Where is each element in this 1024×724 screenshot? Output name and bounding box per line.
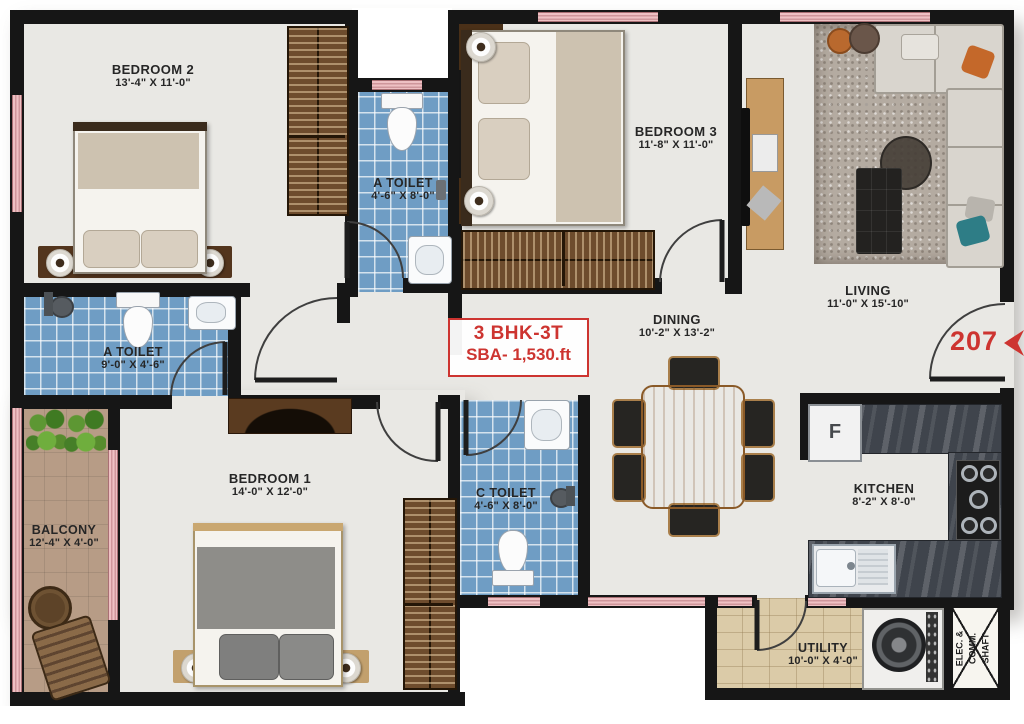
wall-shaft-right bbox=[998, 595, 1010, 700]
bedroom1-bed-blanket bbox=[197, 547, 335, 629]
stove-burner-3 bbox=[961, 517, 978, 534]
room-label-living: LIVING 11'-0" X 15'-10" bbox=[827, 283, 909, 310]
toilet-a-top-sink-basin bbox=[415, 245, 444, 275]
toilet-a-left-dims: 9'-0" X 4'-6" bbox=[101, 359, 165, 371]
pouf-brown bbox=[849, 23, 880, 54]
room-label-bedroom3: BEDROOM 3 11'-8" X 11'-0" bbox=[635, 124, 717, 151]
utility-name: UTILITY bbox=[788, 641, 858, 655]
room-label-kitchen: KITCHEN 8'-2" X 8'-0" bbox=[852, 481, 916, 508]
sofa-back-pillow bbox=[901, 34, 939, 60]
wall-utility-left bbox=[705, 595, 717, 700]
toilet-c-name: C TOILET bbox=[474, 486, 538, 500]
kitchen-dims: 8'-2" X 8'-0" bbox=[852, 496, 916, 508]
bedroom1-wardrobe bbox=[403, 498, 457, 690]
bedroom2-name: BEDROOM 2 bbox=[112, 62, 194, 77]
wall-living-left bbox=[728, 10, 742, 290]
wall-top-left bbox=[10, 10, 358, 24]
bedroom3-pillow-bottom bbox=[478, 118, 530, 180]
bedroom1-pillow-right bbox=[279, 634, 334, 680]
bedroom2-bed-footboard bbox=[73, 122, 207, 131]
kitchen-name: KITCHEN bbox=[852, 481, 916, 496]
bedroom2-pillow-right bbox=[141, 230, 198, 268]
washing-machine-panel bbox=[926, 612, 938, 682]
toilet-a-top-shower bbox=[436, 180, 446, 200]
bedroom1-name: BEDROOM 1 bbox=[229, 471, 311, 486]
utility-dims: 10'-0" X 4'-0" bbox=[788, 655, 858, 667]
bedroom3-bed-blanket bbox=[556, 32, 621, 222]
room-label-balcony: BALCONY 12'-4" X 4'-0" bbox=[29, 523, 99, 549]
fridge: F bbox=[808, 404, 862, 462]
living-name: LIVING bbox=[827, 283, 909, 298]
shaft-label: ELEC. & COMM. SHAFT bbox=[954, 609, 999, 689]
kitchen-sink-drainboard bbox=[858, 549, 888, 585]
exterior-below-utility bbox=[705, 700, 1024, 708]
room-label-bedroom2: BEDROOM 2 13'-4" X 11'-0" bbox=[112, 62, 194, 89]
balcony-plant-1 bbox=[26, 404, 66, 458]
stove-burner-2 bbox=[980, 465, 997, 482]
balcony-dims: 12'-4" X 4'-0" bbox=[29, 537, 99, 549]
toilet-a-left-sink-basin bbox=[196, 302, 226, 323]
wall-bottom-left bbox=[10, 692, 465, 706]
toilet-a-left-shower-head bbox=[50, 296, 74, 318]
toilet-c-shower-pipe bbox=[566, 486, 575, 506]
bedroom1-dims: 14'-0" X 12'-0" bbox=[229, 486, 311, 498]
fridge-label: F bbox=[829, 421, 841, 443]
stove-burner-1 bbox=[961, 465, 978, 482]
room-label-bedroom1: BEDROOM 1 14'-0" X 12'-0" bbox=[229, 471, 311, 498]
wall-right-lower bbox=[1000, 388, 1014, 610]
bedroom3-dims: 11'-8" X 11'-0" bbox=[635, 139, 717, 151]
balcony-plant-2 bbox=[64, 404, 106, 460]
dining-name: DINING bbox=[639, 312, 715, 327]
dining-chair-right-1 bbox=[741, 399, 775, 448]
dining-dims: 10'-2" X 13'-2" bbox=[639, 327, 715, 339]
kitchen-counter-top bbox=[858, 404, 1002, 454]
room-label-utility: UTILITY 10'-0" X 4'-0" bbox=[788, 641, 858, 667]
washing-machine-door bbox=[872, 618, 926, 672]
toilet-a-left-name: A TOILET bbox=[101, 345, 165, 359]
exterior-bottom bbox=[0, 706, 1024, 724]
dining-chair-right-2 bbox=[741, 453, 775, 502]
toilet-a-top-name: A TOILET bbox=[371, 176, 435, 190]
bedroom3-lamp-top bbox=[466, 32, 496, 62]
exterior-notch bbox=[352, 8, 452, 80]
window-living-top bbox=[780, 12, 930, 22]
bedroom1-wardrobe-divider bbox=[403, 603, 453, 606]
wall-foyer-stub bbox=[337, 283, 350, 323]
shaft-line3: SHAFT bbox=[980, 609, 993, 689]
room-label-dining: DINING 10'-2" X 13'-2" bbox=[639, 312, 715, 339]
room-label-toilet-c: C TOILET 4'-6" X 8'-0" bbox=[474, 486, 538, 512]
shaft-line1: ELEC. & bbox=[954, 609, 967, 689]
window-balcony-slider bbox=[108, 450, 118, 620]
bedroom2-pillow-left bbox=[83, 230, 140, 268]
window-dining-bottom bbox=[588, 597, 705, 606]
bedroom2-lamp-left bbox=[46, 249, 74, 277]
stove-burner-4 bbox=[980, 517, 997, 534]
window-bedroom2-left bbox=[12, 95, 22, 212]
tv-console-box bbox=[752, 134, 778, 172]
shaft-line2: COMM. bbox=[967, 609, 980, 689]
toilet-a-left-shower-pipe bbox=[44, 292, 53, 316]
bedroom1-dresser bbox=[228, 398, 352, 434]
toilet-c-tank bbox=[492, 570, 534, 586]
window-balcony-rail bbox=[12, 408, 22, 692]
floor-plan: F bbox=[0, 0, 1024, 724]
wall-toilet-c-right bbox=[578, 395, 590, 608]
unit-door-number: 207 bbox=[950, 326, 998, 357]
wall-utility-bottom bbox=[705, 688, 1010, 700]
bedroom1-bed-footboard bbox=[193, 523, 343, 531]
toilet-a-top-dims: 4'-6" X 8'-0" bbox=[371, 190, 435, 202]
toilet-c-sink-basin bbox=[531, 409, 562, 441]
bedroom1-pillow-left bbox=[219, 634, 279, 680]
dining-table bbox=[641, 385, 745, 509]
window-toilet-c-bottom bbox=[488, 597, 540, 606]
bedroom2-dims: 13'-4" X 11'-0" bbox=[112, 77, 194, 89]
bedroom2-wardrobe-divider bbox=[287, 135, 345, 138]
unit-type-label: 3 BHK-3T bbox=[450, 323, 587, 345]
living-dims: 11'-0" X 15'-10" bbox=[827, 298, 909, 310]
tv-screen bbox=[741, 108, 750, 226]
window-utility-right bbox=[808, 597, 846, 606]
bedroom2-wardrobe bbox=[287, 26, 349, 216]
toilet-c-dims: 4'-6" X 8'-0" bbox=[474, 500, 538, 512]
wall-bedroom3-door-stub bbox=[725, 278, 742, 294]
kitchen-faucet bbox=[847, 562, 855, 570]
ottoman-black bbox=[856, 168, 902, 254]
unit-info-box: 3 BHK-3T SBA- 1,530.ft bbox=[448, 318, 589, 377]
unit-area-label: SBA- 1,530.ft bbox=[450, 345, 587, 365]
bedroom2-bed-blanket bbox=[78, 133, 199, 189]
bedroom3-wardrobe-divider bbox=[562, 230, 565, 286]
bedroom3-name: BEDROOM 3 bbox=[635, 124, 717, 139]
balcony-name: BALCONY bbox=[29, 523, 99, 537]
window-toilet-a-top-vent bbox=[372, 80, 422, 90]
window-bedroom3-top bbox=[538, 12, 658, 22]
bedroom3-lamp-bottom bbox=[464, 186, 494, 216]
room-label-toilet-a-top: A TOILET 4'-6" X 8'-0" bbox=[371, 176, 435, 202]
window-utility-left bbox=[718, 597, 752, 606]
stove-burner-center bbox=[969, 490, 988, 509]
room-label-toilet-a-left: A TOILET 9'-0" X 4'-6" bbox=[101, 345, 165, 371]
bedroom3-wardrobe bbox=[461, 230, 655, 290]
